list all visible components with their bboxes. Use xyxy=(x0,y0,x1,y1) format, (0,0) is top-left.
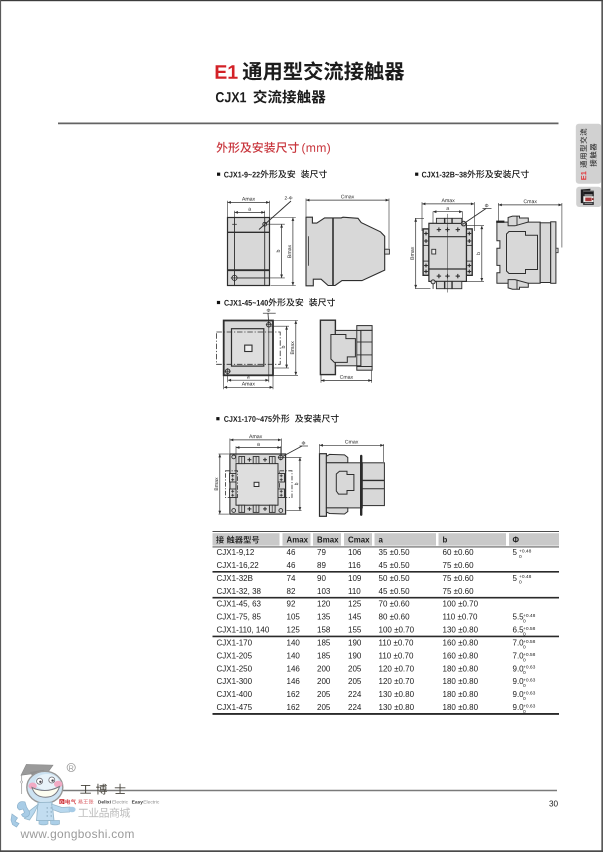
svg-text:100 ±0.70: 100 ±0.70 xyxy=(379,626,415,635)
svg-text:130 ±0.80: 130 ±0.80 xyxy=(379,690,415,699)
svg-text:200: 200 xyxy=(317,664,331,673)
svg-text:140: 140 xyxy=(287,638,301,647)
svg-text:CJX1-250: CJX1-250 xyxy=(217,664,253,673)
svg-text:180 ±0.80: 180 ±0.80 xyxy=(443,664,479,673)
svg-text:+0.58: +0.58 xyxy=(523,626,536,632)
svg-text:224: 224 xyxy=(348,703,362,712)
svg-text:116: 116 xyxy=(348,561,361,570)
svg-text:74: 74 xyxy=(287,574,296,583)
svg-text:100 ±0.70: 100 ±0.70 xyxy=(443,600,479,609)
svg-text:30: 30 xyxy=(549,800,559,809)
svg-text:110: 110 xyxy=(348,587,361,596)
svg-text:70 ±0.60: 70 ±0.60 xyxy=(379,600,411,609)
svg-text:45 ±0.50: 45 ±0.50 xyxy=(379,561,411,570)
svg-text:Delixi: Delixi xyxy=(98,800,112,806)
svg-text:D: D xyxy=(60,799,64,805)
svg-text:120: 120 xyxy=(317,600,331,609)
svg-text:180 ±0.80: 180 ±0.80 xyxy=(443,677,479,686)
svg-text:+0.58: +0.58 xyxy=(523,652,536,658)
svg-text:35 ±0.50: 35 ±0.50 xyxy=(379,548,411,557)
svg-text:R: R xyxy=(69,763,74,772)
svg-text:158: 158 xyxy=(317,626,331,635)
svg-text:120 ±0.70: 120 ±0.70 xyxy=(379,677,415,686)
svg-text:b: b xyxy=(443,536,448,545)
svg-text:125: 125 xyxy=(287,626,301,635)
svg-text:185: 185 xyxy=(317,638,331,647)
svg-text:205: 205 xyxy=(317,690,331,699)
svg-text:CJX1-300: CJX1-300 xyxy=(217,677,253,686)
svg-text:82: 82 xyxy=(287,587,296,596)
svg-text:106: 106 xyxy=(348,548,362,557)
svg-text:60 ±0.60: 60 ±0.60 xyxy=(443,548,475,557)
svg-text:5: 5 xyxy=(513,574,518,583)
svg-text:0: 0 xyxy=(523,696,526,702)
svg-text:89: 89 xyxy=(317,561,326,570)
svg-text:185: 185 xyxy=(317,651,331,660)
svg-text:Electric: Electric xyxy=(143,800,160,806)
svg-text:+0.63: +0.63 xyxy=(523,691,536,697)
svg-text:+0.63: +0.63 xyxy=(523,703,536,709)
svg-text:75 ±0.60: 75 ±0.60 xyxy=(443,587,475,596)
svg-text:180 ±0.80: 180 ±0.80 xyxy=(443,690,479,699)
svg-text:0: 0 xyxy=(519,554,522,560)
svg-text:75 ±0.60: 75 ±0.60 xyxy=(443,574,475,583)
svg-text:146: 146 xyxy=(287,664,301,673)
svg-text:46: 46 xyxy=(287,561,296,570)
svg-text:a: a xyxy=(379,536,384,545)
svg-text:0: 0 xyxy=(523,644,526,650)
svg-text:Cmax: Cmax xyxy=(348,536,370,545)
svg-text:CJX1-16,22: CJX1-16,22 xyxy=(217,561,260,570)
svg-text:140: 140 xyxy=(287,651,301,660)
svg-text:160 ±0.80: 160 ±0.80 xyxy=(443,651,479,660)
svg-text:CJX1-205: CJX1-205 xyxy=(217,651,253,660)
svg-text:CJX1-110, 140: CJX1-110, 140 xyxy=(217,626,270,635)
svg-text:130 ±0.80: 130 ±0.80 xyxy=(443,626,479,635)
svg-text:www.gongboshi.com: www.gongboshi.com xyxy=(20,827,135,841)
svg-text:+0.58: +0.58 xyxy=(523,639,536,645)
svg-text:120 ±0.70: 120 ±0.70 xyxy=(379,664,415,673)
svg-text:135: 135 xyxy=(317,613,331,622)
svg-text:205: 205 xyxy=(348,677,362,686)
svg-text:160 ±0.80: 160 ±0.80 xyxy=(443,638,479,647)
svg-text:Amax: Amax xyxy=(287,536,309,545)
svg-text:162: 162 xyxy=(287,703,301,712)
svg-text:45 ±0.50: 45 ±0.50 xyxy=(379,587,411,596)
svg-text:0: 0 xyxy=(523,670,526,676)
svg-text:+0.63: +0.63 xyxy=(523,665,536,671)
svg-text:162: 162 xyxy=(287,690,301,699)
svg-text:0: 0 xyxy=(523,657,526,663)
svg-text:190: 190 xyxy=(348,638,362,647)
svg-text:46: 46 xyxy=(287,548,296,557)
svg-text:130 ±0.80: 130 ±0.80 xyxy=(379,703,415,712)
svg-text:110 ±0.70: 110 ±0.70 xyxy=(379,638,414,647)
svg-text:103: 103 xyxy=(317,587,331,596)
svg-text:205: 205 xyxy=(317,703,331,712)
svg-text:146: 146 xyxy=(287,677,301,686)
svg-text:Easy: Easy xyxy=(132,800,144,806)
svg-text:0: 0 xyxy=(523,619,526,625)
svg-text:CJX1-32B: CJX1-32B xyxy=(217,574,253,583)
svg-text:190: 190 xyxy=(348,651,362,660)
svg-text:CJX1-475: CJX1-475 xyxy=(217,703,253,712)
svg-text:79: 79 xyxy=(317,548,326,557)
svg-text:+0.48: +0.48 xyxy=(519,548,532,554)
svg-text:CJX1-400: CJX1-400 xyxy=(217,690,253,699)
svg-text:CJX1-75, 85: CJX1-75, 85 xyxy=(217,613,262,622)
svg-text:180 ±0.80: 180 ±0.80 xyxy=(443,703,479,712)
svg-text:+0.48: +0.48 xyxy=(523,613,536,619)
svg-text:+0.63: +0.63 xyxy=(523,678,536,684)
svg-text:110 ±0.70: 110 ±0.70 xyxy=(443,613,478,622)
svg-text:0: 0 xyxy=(523,683,526,689)
svg-text:0: 0 xyxy=(519,580,522,586)
svg-text:110 ±0.70: 110 ±0.70 xyxy=(379,651,414,660)
svg-text:125: 125 xyxy=(348,600,362,609)
svg-text:CJX1-170: CJX1-170 xyxy=(217,638,253,647)
svg-text:205: 205 xyxy=(348,664,362,673)
svg-text:CJX1-32, 38: CJX1-32, 38 xyxy=(217,587,262,596)
svg-text:155: 155 xyxy=(348,626,362,635)
svg-text:109: 109 xyxy=(348,574,362,583)
svg-text:75 ±0.60: 75 ±0.60 xyxy=(443,561,475,570)
svg-text:CJX1-9,12: CJX1-9,12 xyxy=(217,548,255,557)
svg-text:+0.48: +0.48 xyxy=(519,574,532,580)
svg-text:CJX1-45, 63: CJX1-45, 63 xyxy=(217,600,262,609)
svg-text:Electric: Electric xyxy=(112,800,129,806)
svg-text:80 ±0.60: 80 ±0.60 xyxy=(379,613,411,622)
svg-text:50 ±0.50: 50 ±0.50 xyxy=(379,574,411,583)
svg-text:Φ: Φ xyxy=(513,536,520,545)
svg-text:224: 224 xyxy=(348,690,362,699)
svg-text:145: 145 xyxy=(348,613,362,622)
svg-text:200: 200 xyxy=(317,677,331,686)
svg-text:90: 90 xyxy=(317,574,326,583)
svg-text:92: 92 xyxy=(287,600,296,609)
svg-text:105: 105 xyxy=(287,613,301,622)
svg-text:5: 5 xyxy=(513,548,518,557)
svg-text:Bmax: Bmax xyxy=(317,536,339,545)
